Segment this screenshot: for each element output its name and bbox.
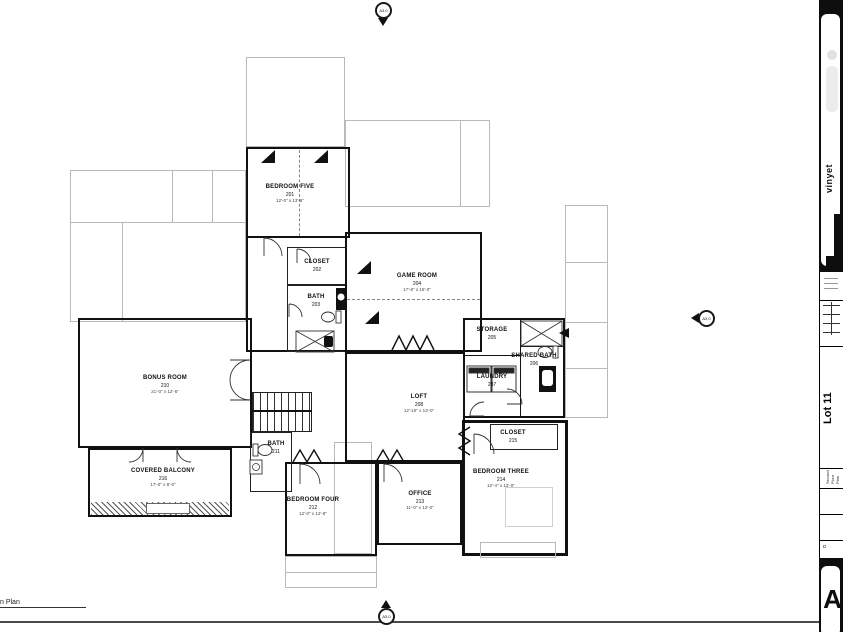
room-label-shared-bath: SHARED BATH 206 [511,353,556,367]
sheet-title: Second Floor Plan [825,470,839,484]
divider [820,488,843,489]
room-label-balcony: COVERED BALCONY 216 17'-0" x 8'-0" [131,468,195,488]
room-label-bath-2: BATH 211 [267,441,284,455]
arrow-icon [559,328,569,338]
room-label-closet-b3: CLOSET 215 [500,430,526,444]
revision-line [831,302,832,335]
lot-number: Lot 11 [822,352,842,464]
logo-art [826,66,838,112]
elevation-marker-bottom-pointer [381,600,391,608]
brand-logo: vinyet [824,146,841,210]
shower-seat [324,336,333,347]
room-label-closet: CLOSET 202 [304,259,330,273]
divider [820,346,843,347]
elevation-marker-right: A3.0 [698,310,715,327]
elevation-marker-top-pointer [378,18,388,26]
elevation-marker-bottom: A3.0 [378,608,395,625]
divider [820,300,843,301]
divider [820,514,843,515]
address-line [824,278,838,279]
room-label-bedroom-five: BEDROOM FIVE 201 12'-0" x 13'-6" [266,184,315,204]
break-lines [293,336,470,462]
symbols-overlay [0,0,843,632]
door-swings [129,238,522,484]
plan-caption: n Plan [0,599,86,608]
shower-pans [296,321,562,352]
room-label-laundry: LAUNDRY 207 [477,374,508,388]
divider [820,540,843,541]
room-label-loft: LOFT 208 12'-10" x 13'-0" [404,394,434,414]
elevation-marker-right-pointer [691,313,699,323]
sheet-letter: A [823,584,842,615]
room-label-office: OFFICE 213 11'-0" x 12'-0" [406,491,433,511]
logo-mark-icon [826,214,840,270]
room-label-bedroom-four: BEDROOM FOUR 212 12'-0" x 12'-8" [287,497,339,517]
address-line [824,288,838,289]
room-label-bath: BATH 203 [307,294,324,308]
title-block: vinyet Lot 11 Second Floor Plan D A [819,0,843,632]
room-label-game-room: GAME ROOM 204 17'-8" x 15'-0" [397,273,437,293]
sheet-number-panel: A [821,566,840,632]
address-line [824,283,838,284]
title-block-middle: Lot 11 Second Floor Plan D [819,272,843,558]
logo-art [827,50,837,60]
date-label: D [823,544,826,549]
elevation-marker-top: A3.0 [375,2,392,19]
room-label-bonus-room: BONUS ROOM 210 21'-0" x 12'-6" [143,375,187,395]
logo-panel: vinyet [821,14,840,266]
floor-plan-sheet: BEDROOM FIVE 201 12'-0" x 13'-6" CLOSET … [0,0,843,632]
room-label-bedroom-three: BEDROOM THREE 214 12'-4" x 13'-0" [473,469,529,489]
sink-icons [250,288,556,474]
room-label-storage: STORAGE 205 [477,327,508,341]
divider [820,468,843,469]
